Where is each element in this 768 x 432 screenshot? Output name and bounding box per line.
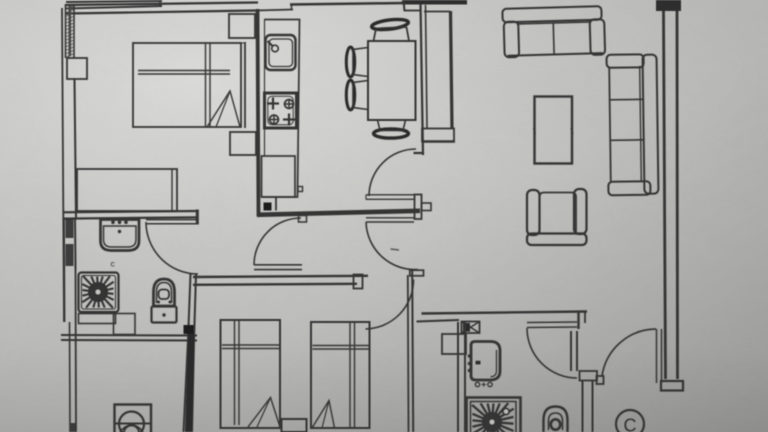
svg-text:C: C — [624, 416, 637, 432]
